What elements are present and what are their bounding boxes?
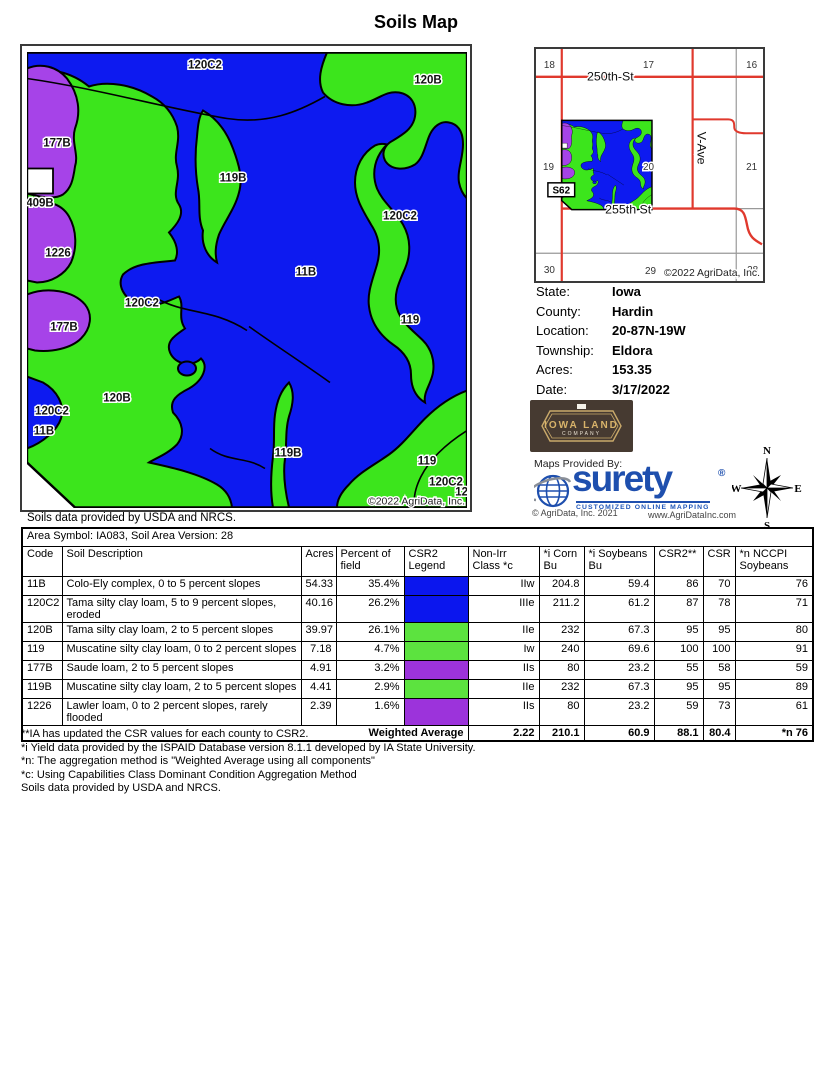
map-label: 120B <box>103 393 131 405</box>
map-label: 120B <box>414 75 442 87</box>
globe-icon <box>534 470 572 510</box>
avg-nccpi: *n 76 <box>735 725 813 741</box>
column-header: Acres <box>301 546 336 576</box>
cell-csr: 100 <box>703 641 735 660</box>
info-row: County:Hardin <box>536 302 806 322</box>
compass-rose-icon: N E S W <box>732 444 802 532</box>
table-row: 1226Lawler loam, 0 to 2 percent slopes, … <box>22 698 813 725</box>
cell-description: Saude loam, 2 to 5 percent slopes <box>62 660 301 679</box>
map-label: 120C2 <box>125 298 159 310</box>
cell-legend <box>404 622 468 641</box>
info-label: Location: <box>536 321 612 341</box>
map-label: 119 <box>401 315 420 327</box>
surety-website: www.AgriDataInc.com <box>648 510 736 520</box>
section-number: 21 <box>746 162 758 173</box>
cell-code: 119 <box>22 641 62 660</box>
info-row: Acres:153.35 <box>536 360 806 380</box>
column-header: CSR2 Legend <box>404 546 468 576</box>
column-header: Soil Description <box>62 546 301 576</box>
cell-corn: 204.8 <box>539 576 584 595</box>
road-255th-label: 255th St <box>605 203 652 217</box>
cell-percent: 1.6% <box>336 698 404 725</box>
map-label: 120C2 <box>35 406 69 418</box>
soil-data-table: Area Symbol: IA083, Soil Area Version: 2… <box>21 527 812 742</box>
cell-description: Tama silty clay loam, 5 to 9 percent slo… <box>62 595 301 622</box>
cell-csr2: 87 <box>654 595 703 622</box>
cell-non-irr-class: IIe <box>468 679 539 698</box>
column-header: *n NCCPI Soybeans <box>735 546 813 576</box>
cell-code: 177B <box>22 660 62 679</box>
section-number: 18 <box>544 60 556 71</box>
map-label: 1226 <box>45 248 71 260</box>
cell-csr: 58 <box>703 660 735 679</box>
field-exclusion-notch <box>27 169 53 194</box>
column-header: *i Soybeans Bu <box>584 546 654 576</box>
road-v-ave-label: V-Ave <box>695 132 709 165</box>
map-label: 120C2 <box>188 60 222 72</box>
cell-csr2: 95 <box>654 679 703 698</box>
section-number: 17 <box>643 60 655 71</box>
surety-wordmark: surety <box>572 458 671 500</box>
cell-csr2: 100 <box>654 641 703 660</box>
cell-percent: 26.2% <box>336 595 404 622</box>
cell-percent: 35.4% <box>336 576 404 595</box>
cell-code: 120C2 <box>22 595 62 622</box>
cell-acres: 54.33 <box>301 576 336 595</box>
cell-corn: 80 <box>539 698 584 725</box>
road-255th-line <box>562 209 762 245</box>
cell-nccpi: 80 <box>735 622 813 641</box>
info-value: 3/17/2022 <box>612 380 670 400</box>
table-row: 11BColo-Ely complex, 0 to 5 percent slop… <box>22 576 813 595</box>
cell-legend <box>404 660 468 679</box>
cell-nccpi: 91 <box>735 641 813 660</box>
info-label: Acres: <box>536 360 612 380</box>
cell-nccpi: 76 <box>735 576 813 595</box>
footnote-line: *c: Using Capabilities Class Dominant Co… <box>21 769 476 783</box>
footnote-line: *n: The aggregation method is "Weighted … <box>21 755 476 769</box>
main-soils-map: 120C2120B177B119B409B120C2122611B120C211… <box>20 44 472 512</box>
column-header-row: CodeSoil DescriptionAcresPercent of fiel… <box>22 546 813 576</box>
cell-soybeans: 69.6 <box>584 641 654 660</box>
iowa-land-company-logo: IOWA LAND COMPANY <box>530 400 633 452</box>
avg-soybeans: 60.9 <box>584 725 654 741</box>
cell-non-irr-class: Iw <box>468 641 539 660</box>
avg-non-irr-class: 2.22 <box>468 725 539 741</box>
cell-acres: 7.18 <box>301 641 336 660</box>
cell-corn: 80 <box>539 660 584 679</box>
map-label: 11B <box>296 267 316 279</box>
cell-soybeans: 23.2 <box>584 698 654 725</box>
info-value: 20-87N-19W <box>612 321 686 341</box>
cell-code: 1226 <box>22 698 62 725</box>
area-symbol-header: Area Symbol: IA083, Soil Area Version: 2… <box>22 528 813 546</box>
info-label: Date: <box>536 380 612 400</box>
cell-legend <box>404 679 468 698</box>
locator-map: S62 250th-St 255th St V-Ave 181716192021… <box>534 47 765 283</box>
cell-corn: 240 <box>539 641 584 660</box>
footnote-line: **IA has updated the CSR values for each… <box>21 728 476 742</box>
compass-n: N <box>763 445 771 457</box>
soils-map-drawing: 120C2120B177B119B409B120C2122611B120C211… <box>27 52 467 508</box>
parcel-info: State:IowaCounty:HardinLocation:20-87N-1… <box>536 282 806 399</box>
cell-soybeans: 67.3 <box>584 679 654 698</box>
locator-copyright: ©2022 AgriData, Inc. <box>664 268 760 279</box>
cell-csr: 95 <box>703 622 735 641</box>
cell-soybeans: 23.2 <box>584 660 654 679</box>
info-row: State:Iowa <box>536 282 806 302</box>
map-label: 11B <box>34 426 54 438</box>
info-value: Eldora <box>612 341 652 361</box>
map-label: 409B <box>27 198 54 210</box>
cell-percent: 3.2% <box>336 660 404 679</box>
cell-csr: 73 <box>703 698 735 725</box>
section-number: 20 <box>643 162 655 173</box>
cell-nccpi: 59 <box>735 660 813 679</box>
cell-csr2: 59 <box>654 698 703 725</box>
footnotes: **IA has updated the CSR values for each… <box>21 728 476 796</box>
cell-non-irr-class: IIs <box>468 660 539 679</box>
logo-line1: IOWA LAND <box>544 420 619 431</box>
info-value: 153.35 <box>612 360 652 380</box>
map-copyright: ©2022 AgriData, Inc. <box>368 496 465 508</box>
cell-percent: 2.9% <box>336 679 404 698</box>
logo-line2: COMPANY <box>562 431 601 437</box>
cell-legend <box>404 595 468 622</box>
cell-percent: 4.7% <box>336 641 404 660</box>
cell-non-irr-class: IIw <box>468 576 539 595</box>
info-label: County: <box>536 302 612 322</box>
cell-acres: 39.97 <box>301 622 336 641</box>
cell-non-irr-class: IIs <box>468 698 539 725</box>
cell-non-irr-class: IIIe <box>468 595 539 622</box>
cell-csr: 78 <box>703 595 735 622</box>
map-label: 120C2 <box>383 211 417 223</box>
cell-csr2: 86 <box>654 576 703 595</box>
cell-percent: 26.1% <box>336 622 404 641</box>
info-row: Location:20-87N-19W <box>536 321 806 341</box>
page-title: Soils Map <box>0 12 832 33</box>
table-row: 120C2Tama silty clay loam, 5 to 9 percen… <box>22 595 813 622</box>
cell-code: 120B <box>22 622 62 641</box>
surety-copyright: © AgriData, Inc. 2021 <box>532 508 618 518</box>
cell-corn: 232 <box>539 622 584 641</box>
soil-region-blue-island <box>178 362 196 376</box>
map-label: 177B <box>50 322 78 334</box>
cell-legend <box>404 576 468 595</box>
column-header: Percent of field <box>336 546 404 576</box>
iowa-state-icon <box>577 404 586 409</box>
highway-label: S62 <box>552 186 570 197</box>
map-caption: Soils data provided by USDA and NRCS. <box>27 512 236 524</box>
section-number: 19 <box>543 162 555 173</box>
cell-corn: 232 <box>539 679 584 698</box>
avg-corn: 210.1 <box>539 725 584 741</box>
compass-e: E <box>794 483 801 495</box>
map-label: 119 <box>418 456 437 468</box>
cell-csr: 95 <box>703 679 735 698</box>
cell-description: Tama silty clay loam, 2 to 5 percent slo… <box>62 622 301 641</box>
info-value: Iowa <box>612 282 641 302</box>
table-row: 119Muscatine silty clay loam, 0 to 2 per… <box>22 641 813 660</box>
info-label: State: <box>536 282 612 302</box>
cell-description: Muscatine silty clay loam, 0 to 2 percen… <box>62 641 301 660</box>
compass-w: W <box>732 483 742 495</box>
map-label: 119B <box>275 448 302 460</box>
cell-code: 119B <box>22 679 62 698</box>
section-number: 30 <box>544 265 556 276</box>
locator-drawing: S62 250th-St 255th St V-Ave 181716192021… <box>536 49 763 281</box>
column-header: *i Corn Bu <box>539 546 584 576</box>
cell-non-irr-class: IIe <box>468 622 539 641</box>
info-row: Date:3/17/2022 <box>536 380 806 400</box>
cell-acres: 4.41 <box>301 679 336 698</box>
info-label: Township: <box>536 341 612 361</box>
table-row: 177BSaude loam, 2 to 5 percent slopes4.9… <box>22 660 813 679</box>
cell-legend <box>404 698 468 725</box>
cell-nccpi: 61 <box>735 698 813 725</box>
section-number: 16 <box>746 60 758 71</box>
cell-description: Lawler loam, 0 to 2 percent slopes, rare… <box>62 698 301 725</box>
footnote-line: Soils data provided by USDA and NRCS. <box>21 782 476 796</box>
info-value: Hardin <box>612 302 653 322</box>
section-number: 29 <box>645 266 657 277</box>
avg-csr2: 88.1 <box>654 725 703 741</box>
cell-corn: 211.2 <box>539 595 584 622</box>
footnote-line: *i Yield data provided by the ISPAID Dat… <box>21 742 476 756</box>
cell-csr2: 55 <box>654 660 703 679</box>
cell-code: 11B <box>22 576 62 595</box>
column-header: CSR <box>703 546 735 576</box>
avg-csr: 80.4 <box>703 725 735 741</box>
cell-description: Colo-Ely complex, 0 to 5 percent slopes <box>62 576 301 595</box>
table-row: 120BTama silty clay loam, 2 to 5 percent… <box>22 622 813 641</box>
cell-csr: 70 <box>703 576 735 595</box>
registered-mark: ® <box>718 468 725 479</box>
table-row: 119BMuscatine silty clay loam, 2 to 5 pe… <box>22 679 813 698</box>
column-header: Non-Irr Class *c <box>468 546 539 576</box>
road-250th-label: 250th-St <box>587 70 634 84</box>
column-header: Code <box>22 546 62 576</box>
cell-acres: 2.39 <box>301 698 336 725</box>
cell-soybeans: 59.4 <box>584 576 654 595</box>
column-header: CSR2** <box>654 546 703 576</box>
cell-acres: 40.16 <box>301 595 336 622</box>
cell-soybeans: 61.2 <box>584 595 654 622</box>
map-label: 177B <box>43 138 71 150</box>
cell-description: Muscatine silty clay loam, 2 to 5 percen… <box>62 679 301 698</box>
cell-csr2: 95 <box>654 622 703 641</box>
cell-nccpi: 71 <box>735 595 813 622</box>
surety-logo: surety ® CUSTOMIZED ONLINE MAPPING © Agr… <box>532 468 762 518</box>
cell-soybeans: 67.3 <box>584 622 654 641</box>
info-row: Township:Eldora <box>536 341 806 361</box>
cell-acres: 4.91 <box>301 660 336 679</box>
cell-legend <box>404 641 468 660</box>
cell-nccpi: 89 <box>735 679 813 698</box>
map-label: 119B <box>220 173 247 185</box>
